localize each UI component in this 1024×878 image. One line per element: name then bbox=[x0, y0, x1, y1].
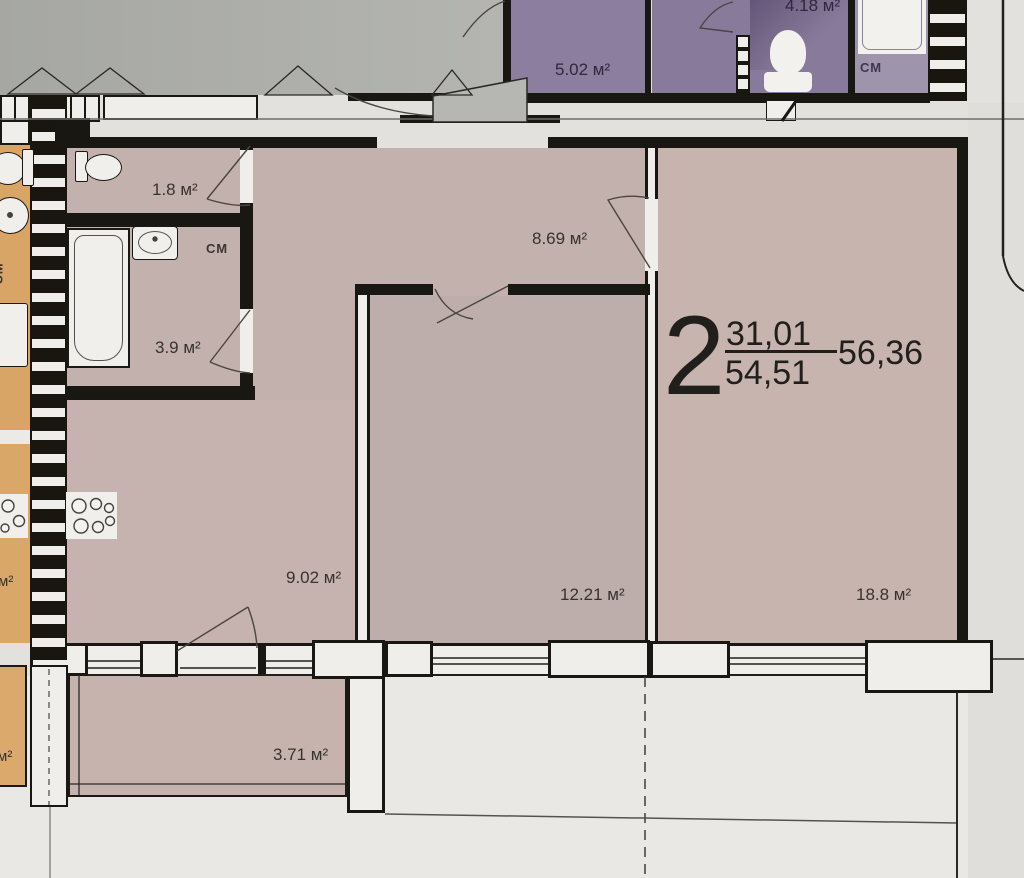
cm-label-left-neighbor: СМ bbox=[0, 262, 6, 284]
bottom-wall-segment-d bbox=[650, 641, 730, 678]
upper-neighbor-threshold bbox=[766, 100, 796, 121]
bathroom-sink-icon bbox=[132, 226, 178, 260]
bathroom-right-wall-mid bbox=[240, 203, 253, 309]
kitchen-stove-counter bbox=[66, 492, 117, 539]
living-room-door-gap bbox=[645, 199, 658, 271]
partial-area-label-left-bottom: м² bbox=[0, 748, 12, 765]
bathtub-inner bbox=[74, 235, 123, 361]
bottom-wall-segment-c bbox=[385, 641, 433, 677]
party-wall-left bbox=[30, 95, 67, 660]
corridor-wall-segment bbox=[103, 95, 258, 120]
bottom-wall-pier-1 bbox=[312, 640, 385, 679]
bedroom-living-divider-bottom bbox=[645, 271, 658, 643]
apartment-top-wall-right bbox=[548, 137, 968, 148]
left-neighbor-room-mid-fill bbox=[0, 444, 30, 643]
upper-neighbor-partition-2 bbox=[848, 0, 855, 93]
balcony-door-post bbox=[258, 644, 266, 674]
party-wall-top-right bbox=[928, 0, 967, 101]
left-neighbor-room-top-fill bbox=[0, 143, 30, 430]
upper-neighbor-left-wall bbox=[503, 0, 511, 95]
bottom-wall-pier-2 bbox=[548, 640, 650, 678]
summary-fraction-bar bbox=[725, 350, 837, 353]
upper-neighbor-door-jamb bbox=[736, 35, 750, 97]
wc-bathroom-divider-wall bbox=[65, 213, 253, 227]
summary-total-area: 54,51 bbox=[725, 356, 810, 390]
bottom-wall-segment-b bbox=[140, 641, 178, 677]
bathroom-bottom-wall bbox=[65, 386, 255, 400]
corridor-wall-segment-left-end bbox=[0, 120, 30, 145]
summary-living-area: 31,01 bbox=[726, 317, 811, 351]
bathroom-right-wall-top-stub bbox=[240, 143, 253, 150]
summary-total-with-balcony: 56,36 bbox=[838, 336, 923, 370]
bathroom-door-gap bbox=[240, 309, 253, 373]
left-neighbor-wall-gap bbox=[0, 430, 30, 444]
room-area-label-bathroom: 3.9 м² bbox=[155, 338, 201, 358]
floor-plan-canvas: 5.02 м² 4.18 м² СМ 1.8 м² СМ 3.9 м² 8.69… bbox=[0, 0, 1024, 878]
stair-lobby-gray-zone bbox=[0, 0, 505, 95]
upper-neighbor-bottom-wall bbox=[505, 93, 930, 103]
neighbor-stove-counter bbox=[0, 494, 28, 538]
right-corridor-zone bbox=[968, 103, 1024, 878]
balcony-floor-fill bbox=[68, 672, 347, 797]
wc-toilet-bowl-icon bbox=[85, 154, 122, 181]
wc-door-gap bbox=[240, 150, 253, 203]
apartment-top-wall-corner bbox=[55, 118, 90, 137]
room-area-label-balcony: 3.71 м² bbox=[273, 745, 328, 765]
room-area-label-kitchen: 9.02 м² bbox=[286, 568, 341, 588]
upper-toilet-base-icon bbox=[764, 72, 812, 92]
upper-bathtub-inner bbox=[862, 0, 922, 50]
room-area-label-living-room: 18.8 м² bbox=[856, 585, 911, 605]
bathroom-sink-basin bbox=[138, 231, 172, 254]
bathroom-right-wall-low bbox=[240, 373, 253, 400]
upper-toilet-bowl-icon bbox=[770, 30, 806, 74]
cm-label-bathroom: СМ bbox=[206, 241, 228, 256]
bottom-wall-corner bbox=[865, 640, 993, 693]
neighbor-toilet-tank-icon bbox=[22, 149, 34, 186]
bathtub-icon bbox=[67, 228, 130, 368]
apartment-top-wall-left bbox=[55, 137, 377, 148]
bedroom-top-wall-left bbox=[355, 284, 433, 295]
room-area-label-bedroom: 12.21 м² bbox=[560, 585, 625, 605]
kitchen-bedroom-divider bbox=[355, 287, 370, 643]
entrance-door-sill bbox=[400, 115, 560, 123]
bedroom-top-wall-right bbox=[508, 284, 650, 295]
partial-area-label-left-mid: м² bbox=[0, 573, 13, 590]
upper-bathtub-icon bbox=[858, 0, 926, 54]
bedroom-living-divider-top bbox=[645, 143, 658, 199]
room-area-label-wc: 1.8 м² bbox=[152, 180, 198, 200]
balcony-divider-wall bbox=[30, 665, 68, 807]
neighbor-washing-machine-icon bbox=[0, 303, 28, 367]
room-area-label-upper-room: 5.02 м² bbox=[555, 60, 610, 80]
balcony-side-pier bbox=[347, 676, 385, 813]
cm-label-upper-bath: СМ bbox=[860, 60, 882, 75]
room-area-label-upper-wc: 4.18 м² bbox=[785, 0, 840, 16]
left-neighbor-balcony-fill bbox=[0, 665, 27, 787]
room-area-label-hallway: 8.69 м² bbox=[532, 229, 587, 249]
summary-rooms-count: 2 bbox=[663, 300, 725, 412]
upper-neighbor-partition-1 bbox=[645, 0, 651, 93]
apartment-right-wall bbox=[957, 143, 968, 643]
